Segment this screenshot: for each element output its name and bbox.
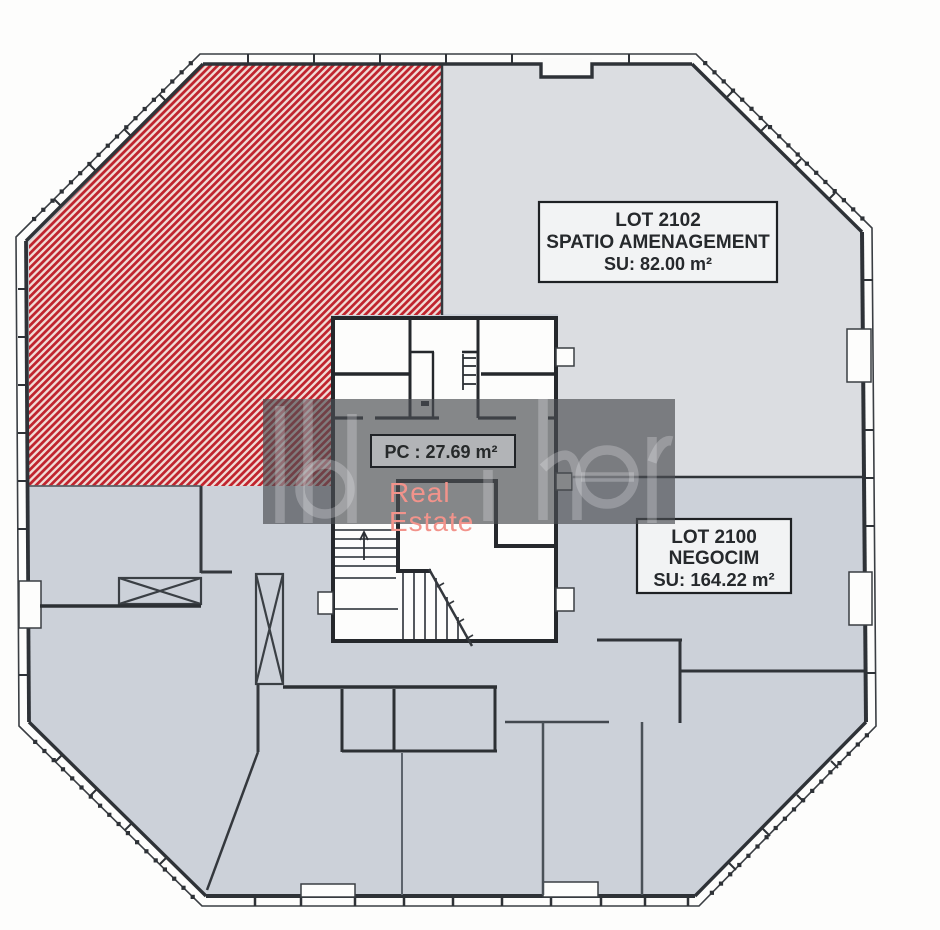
svg-text:SU: 82.00 m²: SU: 82.00 m²	[604, 254, 712, 274]
svg-text:SPATIO AMENAGEMENT: SPATIO AMENAGEMENT	[546, 232, 770, 253]
svg-text:PC : 27.69 m²: PC : 27.69 m²	[384, 442, 497, 462]
svg-text:Real: Real	[389, 477, 451, 508]
svg-text:Estate: Estate	[389, 506, 474, 537]
svg-text:NEGOCIM: NEGOCIM	[669, 548, 760, 569]
svg-text:LOT 2102: LOT 2102	[615, 210, 701, 231]
svg-text:SU: 164.22 m²: SU: 164.22 m²	[653, 569, 774, 590]
svg-text:LOT 2100: LOT 2100	[671, 527, 757, 548]
